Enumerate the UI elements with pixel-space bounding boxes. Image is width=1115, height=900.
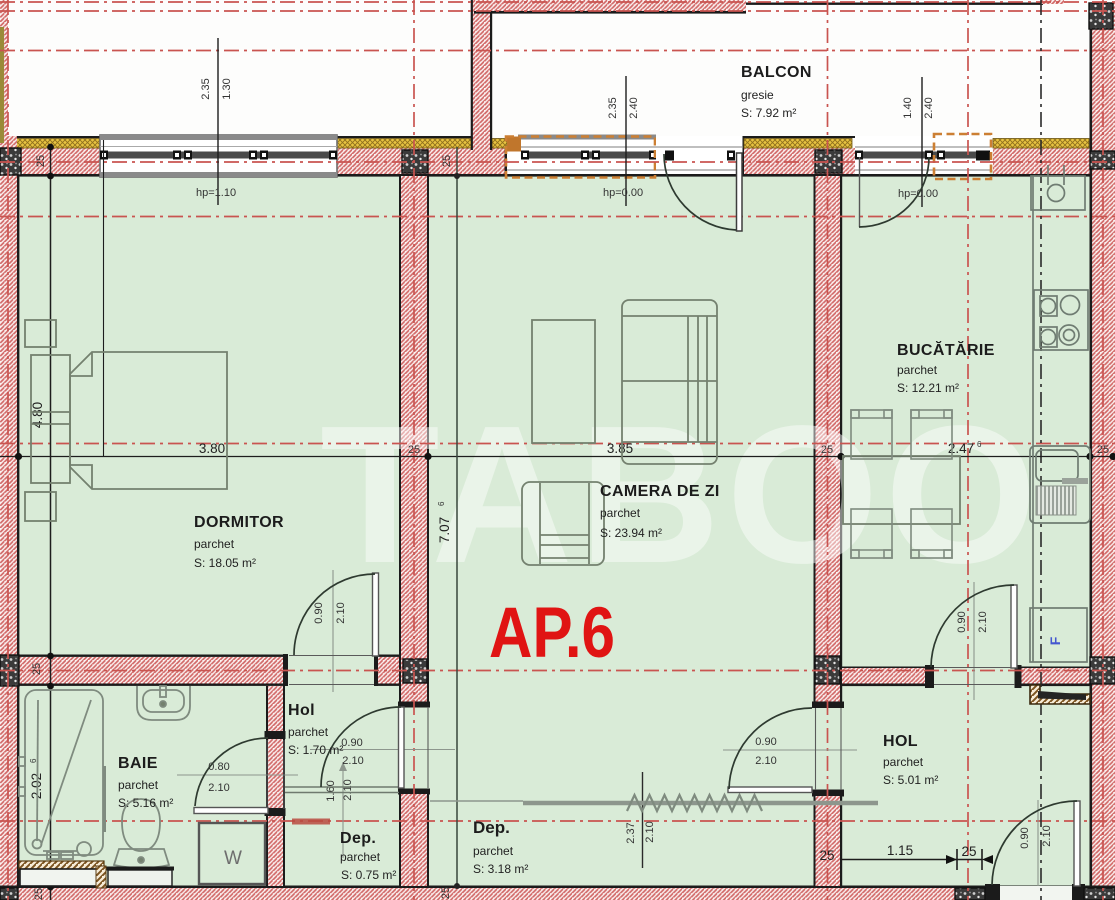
svg-text:2.10: 2.10 xyxy=(755,755,776,767)
svg-text:2.10: 2.10 xyxy=(335,602,347,623)
svg-text:S: 3.18 m²: S: 3.18 m² xyxy=(473,862,528,876)
svg-text:W: W xyxy=(224,848,242,869)
svg-text:hp=1.10: hp=1.10 xyxy=(196,187,236,199)
svg-text:2.10: 2.10 xyxy=(1041,825,1053,846)
svg-text:6: 6 xyxy=(29,758,38,763)
svg-text:0.90: 0.90 xyxy=(1019,827,1031,848)
svg-text:1.30: 1.30 xyxy=(221,78,233,99)
svg-text:2.35: 2.35 xyxy=(607,97,619,118)
svg-text:F: F xyxy=(1047,636,1063,645)
svg-text:25: 25 xyxy=(961,844,976,859)
svg-text:6: 6 xyxy=(977,440,982,449)
svg-text:parchet: parchet xyxy=(118,778,159,792)
svg-text:BALCON: BALCON xyxy=(741,64,812,81)
svg-text:Dep.: Dep. xyxy=(473,818,510,837)
svg-text:25: 25 xyxy=(33,888,45,900)
svg-text:25: 25 xyxy=(31,663,43,675)
svg-text:S: 1.70 m²: S: 1.70 m² xyxy=(288,743,343,757)
svg-text:HOL: HOL xyxy=(883,733,918,750)
svg-text:parchet: parchet xyxy=(288,725,329,739)
svg-text:0.90: 0.90 xyxy=(755,736,776,748)
svg-text:parchet: parchet xyxy=(473,844,514,858)
svg-text:25: 25 xyxy=(35,155,47,167)
svg-text:0.90: 0.90 xyxy=(313,602,325,623)
svg-text:25: 25 xyxy=(1097,444,1109,456)
svg-text:25: 25 xyxy=(821,444,833,456)
svg-text:Hol: Hol xyxy=(288,702,315,719)
svg-text:gresie: gresie xyxy=(741,88,774,102)
svg-text:S: 5.16 m²: S: 5.16 m² xyxy=(118,796,173,810)
svg-text:2.10: 2.10 xyxy=(977,611,989,632)
svg-text:parchet: parchet xyxy=(883,755,924,769)
svg-text:2.10: 2.10 xyxy=(342,779,354,800)
svg-text:6: 6 xyxy=(437,501,446,506)
svg-text:2.10: 2.10 xyxy=(342,755,363,767)
svg-text:0.80: 0.80 xyxy=(208,761,229,773)
svg-text:hp=0.00: hp=0.00 xyxy=(603,187,643,199)
svg-text:0.90: 0.90 xyxy=(956,611,968,632)
svg-text:2.37: 2.37 xyxy=(625,822,637,843)
svg-text:3.85: 3.85 xyxy=(607,441,633,456)
svg-text:2.40: 2.40 xyxy=(923,97,935,118)
svg-text:S: 12.21 m²: S: 12.21 m² xyxy=(897,381,959,395)
svg-text:parchet: parchet xyxy=(194,537,235,551)
svg-text:parchet: parchet xyxy=(600,506,641,520)
svg-text:25: 25 xyxy=(440,887,452,899)
svg-text:S: 18.05 m²: S: 18.05 m² xyxy=(194,556,256,570)
svg-text:AP.6: AP.6 xyxy=(489,594,615,673)
svg-text:parchet: parchet xyxy=(897,363,938,377)
svg-text:Dep.: Dep. xyxy=(340,830,376,847)
svg-text:1.60: 1.60 xyxy=(325,780,337,801)
svg-text:S: 7.92 m²: S: 7.92 m² xyxy=(741,106,796,120)
svg-text:1.40: 1.40 xyxy=(902,97,914,118)
svg-text:2.40: 2.40 xyxy=(628,97,640,118)
svg-text:25: 25 xyxy=(819,848,834,863)
svg-text:2.10: 2.10 xyxy=(208,782,229,794)
svg-text:parchet: parchet xyxy=(340,850,381,864)
svg-text:25: 25 xyxy=(408,444,420,456)
svg-text:S: 23.94 m²: S: 23.94 m² xyxy=(600,526,662,540)
svg-text:S: 0.75 m²: S: 0.75 m² xyxy=(341,868,396,882)
svg-text:2.35: 2.35 xyxy=(200,78,212,99)
svg-text:CAMERA DE ZI: CAMERA DE ZI xyxy=(600,483,720,500)
svg-text:7.07: 7.07 xyxy=(437,517,452,543)
svg-text:S: 5.01 m²: S: 5.01 m² xyxy=(883,773,938,787)
svg-text:3.80: 3.80 xyxy=(199,441,225,456)
svg-text:BUCĂTĂRIE: BUCĂTĂRIE xyxy=(897,340,995,359)
svg-text:2.10: 2.10 xyxy=(644,821,656,842)
svg-text:DORMITOR: DORMITOR xyxy=(194,514,284,531)
svg-text:25: 25 xyxy=(441,155,453,167)
svg-text:BAIE: BAIE xyxy=(118,755,158,772)
svg-text:1.15: 1.15 xyxy=(887,843,913,858)
svg-text:0.90: 0.90 xyxy=(341,737,362,749)
